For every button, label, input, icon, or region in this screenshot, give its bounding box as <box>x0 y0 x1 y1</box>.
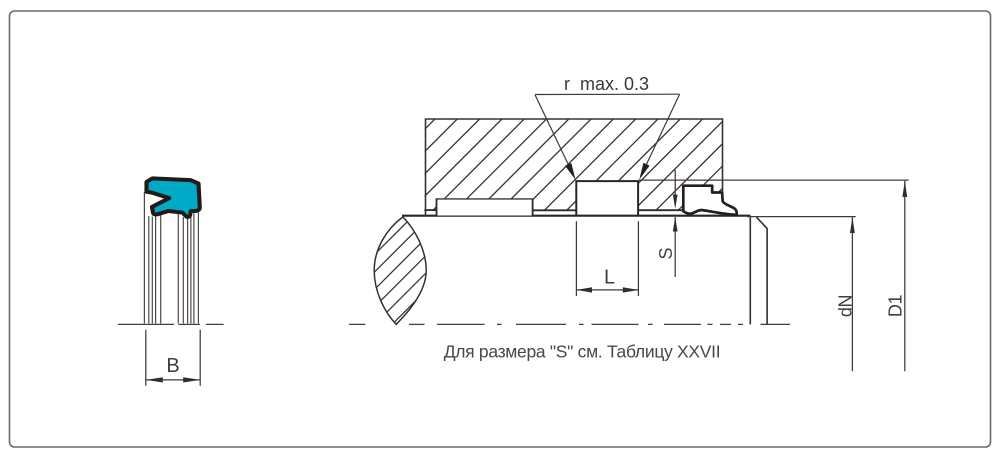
svg-text:L: L <box>604 267 615 289</box>
svg-text:dN: dN <box>835 295 855 317</box>
svg-text:D1: D1 <box>885 295 905 318</box>
svg-text:r max. 0.3: r max. 0.3 <box>564 74 649 94</box>
svg-text:Для размера "S" см. Таблицу XX: Для размера "S" см. Таблицу XXVII <box>444 342 721 362</box>
svg-text:S: S <box>656 247 676 259</box>
svg-text:B: B <box>166 355 179 377</box>
